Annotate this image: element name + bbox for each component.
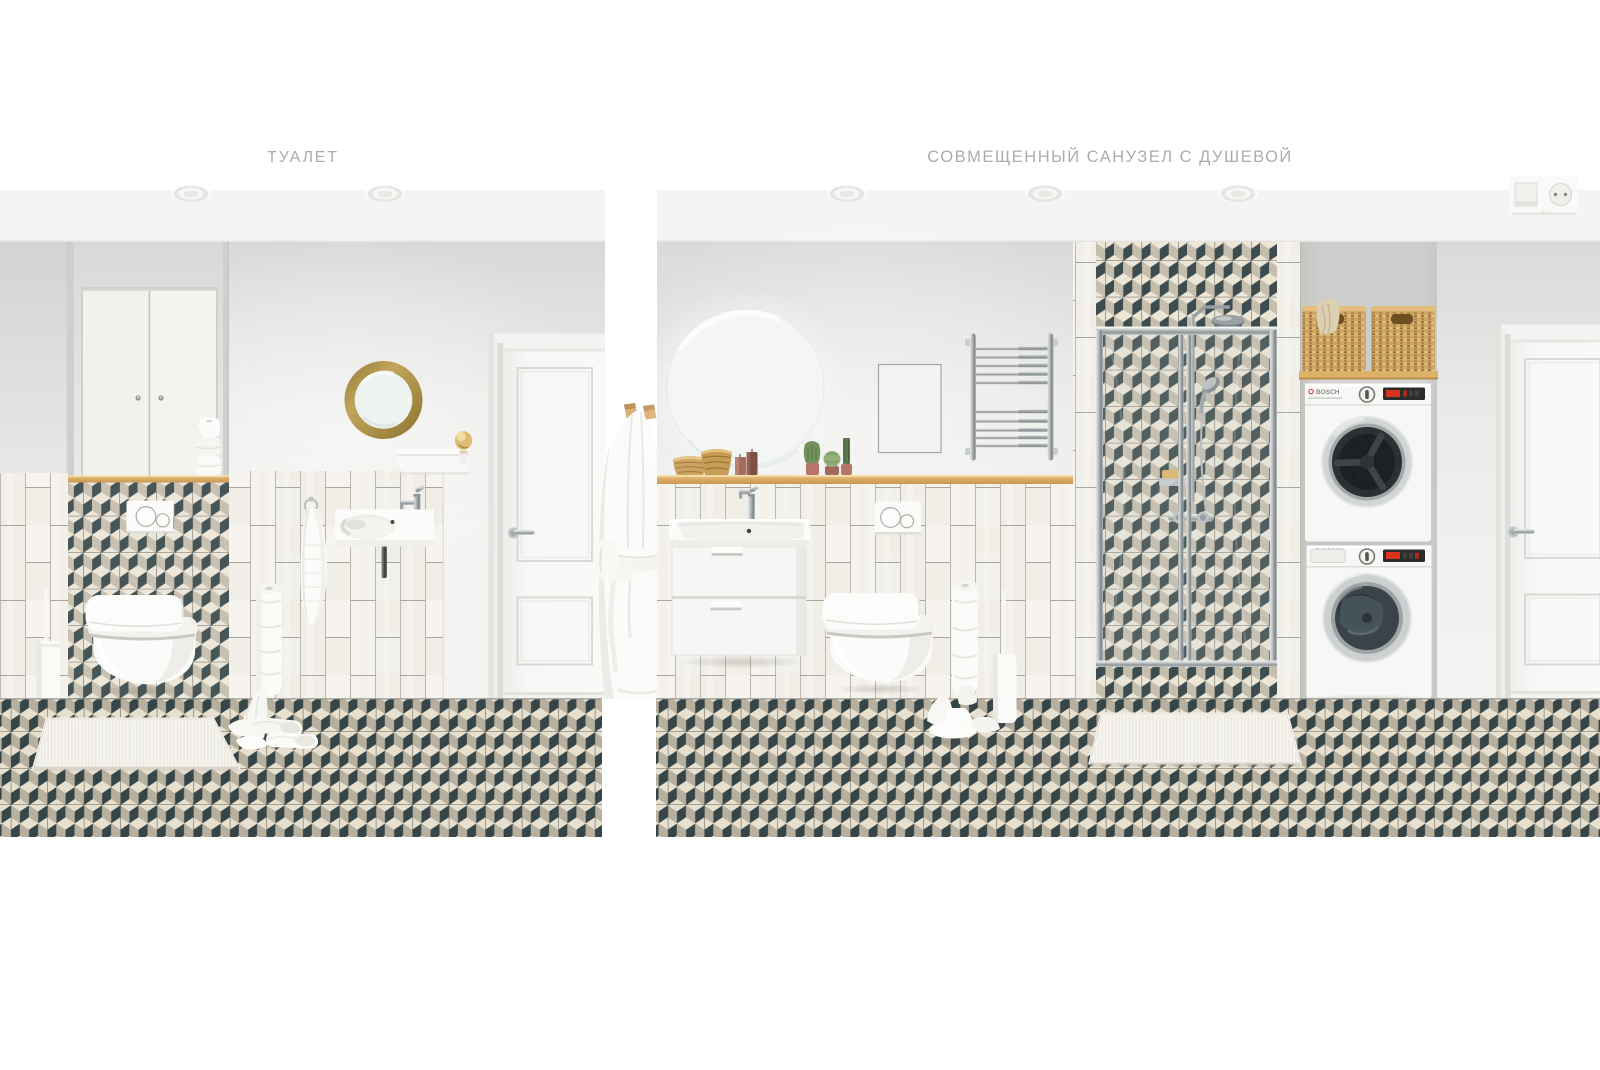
svg-text:ТУАЛЕТ: ТУАЛЕТ: [267, 149, 339, 166]
svg-text:BOSCH: BOSCH: [1316, 389, 1340, 396]
svg-text:СОВМЕЩЕННЫЙ САНУЗЕЛ С ДУШЕВОЙ: СОВМЕЩЕННЫЙ САНУЗЕЛ С ДУШЕВОЙ: [927, 147, 1293, 166]
